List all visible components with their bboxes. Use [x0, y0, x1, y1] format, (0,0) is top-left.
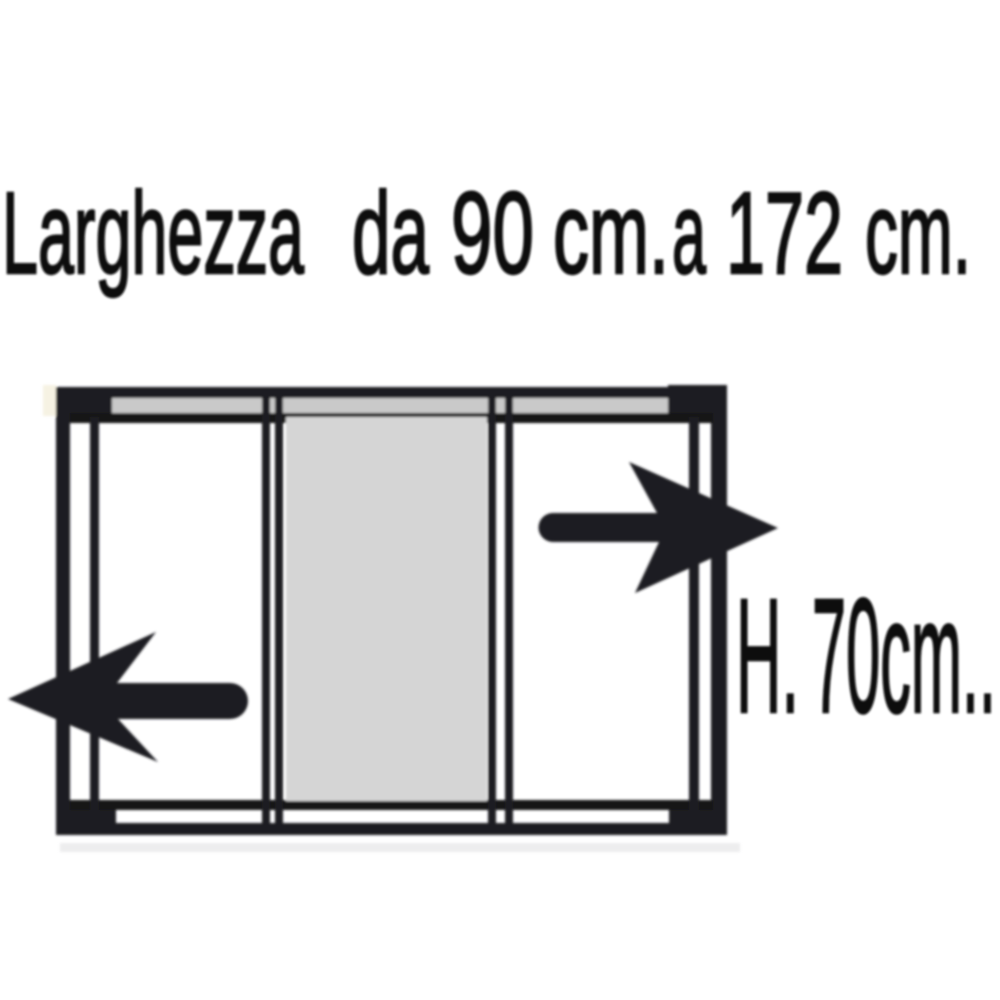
svg-text:H.: H. — [736, 564, 799, 747]
svg-text:90: 90 — [451, 168, 534, 298]
svg-text:70cm..: 70cm.. — [812, 564, 996, 747]
svg-text:da: da — [352, 168, 429, 298]
svg-text:cm.: cm. — [553, 168, 669, 298]
svg-text:Larghezza: Larghezza — [2, 168, 304, 298]
svg-text:a: a — [672, 168, 706, 298]
svg-text:172: 172 — [726, 168, 843, 298]
svg-text:cm.: cm. — [865, 168, 971, 298]
